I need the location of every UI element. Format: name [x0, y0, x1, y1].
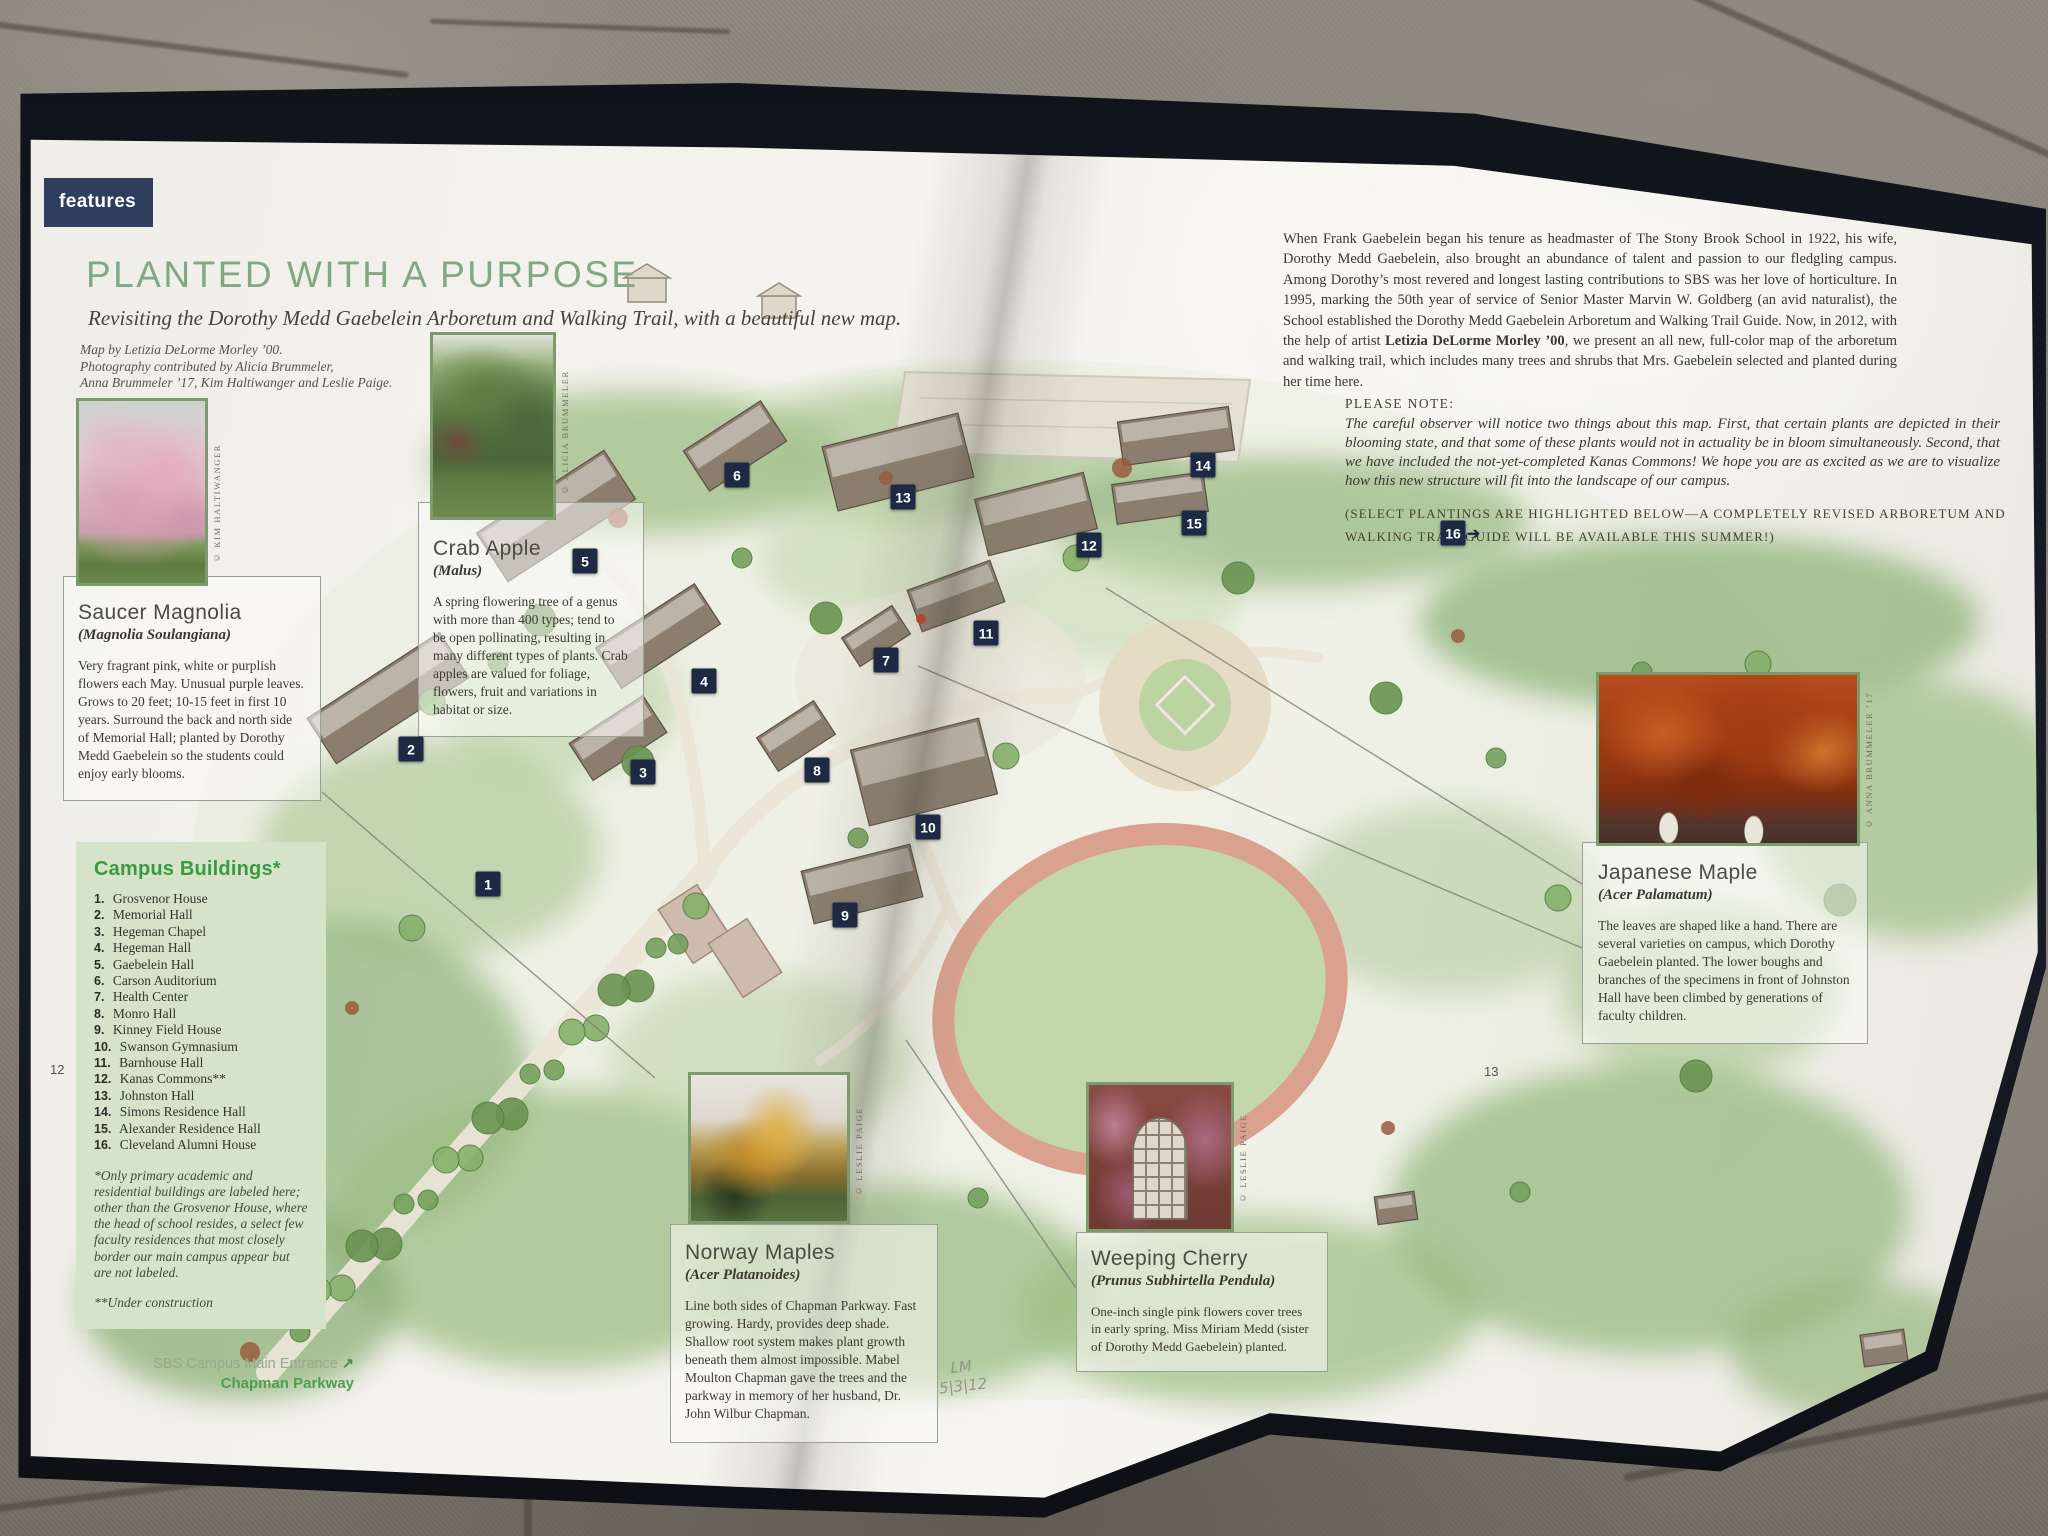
intro-text: When Frank Gaebelein began his tenure as…: [1283, 231, 1897, 349]
map-marker-14: 14: [1191, 453, 1216, 478]
map-marker-9: 9: [833, 903, 858, 928]
pavement-crack: [0, 20, 409, 78]
building-list-item: 4. Hegeman Hall: [94, 940, 310, 956]
map-marker-6: 6: [725, 463, 750, 488]
building-list-item: 7. Health Center: [94, 989, 310, 1005]
map-marker-11: 11: [974, 621, 999, 646]
plant-species: (Malus): [433, 563, 629, 580]
plant-name: Japanese Maple: [1598, 861, 1852, 885]
building-list-item: 8. Monro Hall: [94, 1006, 310, 1022]
plant-species: (Prunus Subhirtella Pendula): [1091, 1273, 1313, 1290]
credit-line: Map by Letizia DeLorme Morley ’00.: [80, 342, 392, 359]
entrance-arrow-icon: ↗: [342, 1356, 354, 1372]
norway-maples-callout: Norway Maples (Acer Platanoides) Line bo…: [670, 1224, 938, 1443]
map-credits: Map by Letizia DeLorme Morley ’00. Photo…: [80, 342, 392, 392]
map-marker-3: 3: [631, 760, 656, 785]
building-list-item: 1. Grosvenor House: [94, 891, 310, 907]
entrance-text: SBS Campus Main Entrance: [153, 1356, 338, 1372]
photo-credit: © ANNA BRUMMELER ’17: [1864, 676, 1874, 844]
map-marker-10: 10: [916, 815, 941, 840]
plant-description: The leaves are shaped like a hand. There…: [1598, 917, 1852, 1025]
photo-credit: © ALICIA BRUMMELER: [560, 348, 570, 518]
plant-species: (Acer Palamatum): [1598, 887, 1852, 904]
saucer-magnolia-photo: [76, 398, 208, 586]
note-label: PLEASE NOTE:: [1345, 396, 2000, 412]
crab-apple-callout: Crab Apple (Malus) A spring flowering tr…: [418, 502, 644, 737]
article-subtitle: Revisiting the Dorothy Medd Gaebelein Ar…: [88, 306, 948, 331]
building-list-item: 6. Carson Auditorium: [94, 973, 310, 989]
plant-name: Saucer Magnolia: [78, 601, 306, 625]
baseball-field: [1099, 619, 1271, 791]
map-marker-4: 4: [692, 669, 717, 694]
map-marker-2: 2: [399, 737, 424, 762]
photo-credit: © LESLIE PAIGE: [854, 1078, 864, 1224]
building-list-item: 2. Memorial Hall: [94, 907, 310, 923]
plant-name: Crab Apple: [433, 537, 629, 561]
building-list-item: 11. Barnhouse Hall: [94, 1055, 310, 1071]
plant-species: (Acer Platanoides): [685, 1267, 923, 1284]
plant-description: A spring flowering tree of a genus with …: [433, 593, 629, 720]
building-list-item: 5. Gaebelein Hall: [94, 957, 310, 973]
map-marker-7: 7: [874, 648, 899, 673]
building-list-item: 14. Simons Residence Hall: [94, 1104, 310, 1120]
plant-description: Very fragrant pink, white or purplish fl…: [78, 657, 306, 784]
japanese-maple-photo: [1596, 672, 1860, 846]
credit-line: Photography contributed by Alicia Brumme…: [80, 359, 392, 376]
building-list-item: 9. Kinney Field House: [94, 1022, 310, 1038]
map-marker-5: 5: [573, 549, 598, 574]
features-section-tag: features: [44, 178, 153, 227]
plant-species: (Magnolia Soulangiana): [78, 627, 306, 644]
intro-artist-name: Letizia DeLorme Morley ’00: [1385, 333, 1565, 349]
page-number-left: 12: [50, 1062, 64, 1077]
article-title: PLANTED WITH A PURPOSE: [86, 254, 639, 296]
please-note-block: PLEASE NOTE: The careful observer will n…: [1345, 396, 2000, 491]
map-marker-15: 15: [1182, 511, 1207, 536]
plant-name: Weeping Cherry: [1091, 1247, 1313, 1271]
photo-credit: © LESLIE PAIGE: [1238, 1086, 1248, 1230]
legend-title: Campus Buildings*: [94, 858, 310, 881]
building-list: 1. Grosvenor House2. Memorial Hall3. Heg…: [94, 891, 310, 1154]
map-marker-16: 16➔: [1441, 521, 1466, 546]
map-marker-1: 1: [476, 872, 501, 897]
building-list-item: 10. Swanson Gymnasium: [94, 1039, 310, 1055]
saucer-magnolia-callout: Saucer Magnolia (Magnolia Soulangiana) V…: [63, 576, 321, 801]
crab-apple-photo: [430, 332, 556, 520]
building-list-item: 12. Kanas Commons**: [94, 1071, 310, 1087]
legend-footnote-construction: **Under construction: [94, 1295, 310, 1311]
weeping-cherry-photo: [1086, 1082, 1234, 1232]
campus-buildings-legend: Campus Buildings* 1. Grosvenor House2. M…: [76, 842, 326, 1329]
note-text: The careful observer will notice two thi…: [1345, 415, 2000, 491]
intro-paragraph: When Frank Gaebelein began his tenure as…: [1283, 229, 1897, 392]
offmap-arrow-icon: ➔: [1468, 524, 1481, 542]
map-marker-8: 8: [805, 758, 830, 783]
open-spread: features PLANTED WITH A PURPOSE Revisiti…: [0, 0, 2048, 1536]
plant-name: Norway Maples: [685, 1241, 923, 1265]
building-list-item: 15. Alexander Residence Hall: [94, 1121, 310, 1137]
plant-description: One-inch single pink flowers cover trees…: [1091, 1303, 1313, 1355]
arched-window: [1132, 1117, 1189, 1221]
japanese-maple-callout: Japanese Maple (Acer Palamatum) The leav…: [1582, 842, 1868, 1044]
legend-footnote: *Only primary academic and residential b…: [94, 1168, 310, 1281]
building-list-item: 3. Hegeman Chapel: [94, 924, 310, 940]
pavement-crack: [430, 19, 730, 34]
handwritten-initials-date: LM 5|3|12: [936, 1356, 988, 1399]
norway-maples-photo: [688, 1072, 850, 1224]
building-list-item: 13. Johnston Hall: [94, 1088, 310, 1104]
campus-entrance-label: SBS Campus Main Entrance ↗ Chapman Parkw…: [118, 1356, 354, 1392]
photo-credit: © KIM HALTIWANGER: [212, 420, 222, 586]
building-list-item: 16. Cleveland Alumni House: [94, 1137, 310, 1153]
page-number-right: 13: [1484, 1064, 1498, 1079]
weeping-cherry-callout: Weeping Cherry (Prunus Subhirtella Pendu…: [1076, 1232, 1328, 1372]
entrance-road-name: Chapman Parkway: [118, 1375, 354, 1392]
plant-description: Line both sides of Chapman Parkway. Fast…: [685, 1297, 923, 1424]
photographed-magazine-spread: features PLANTED WITH A PURPOSE Revisiti…: [0, 0, 2048, 1536]
map-marker-13: 13: [891, 485, 916, 510]
map-marker-12: 12: [1077, 533, 1102, 558]
credit-line: Anna Brummeler ’17, Kim Haltiwanger and …: [80, 375, 392, 392]
